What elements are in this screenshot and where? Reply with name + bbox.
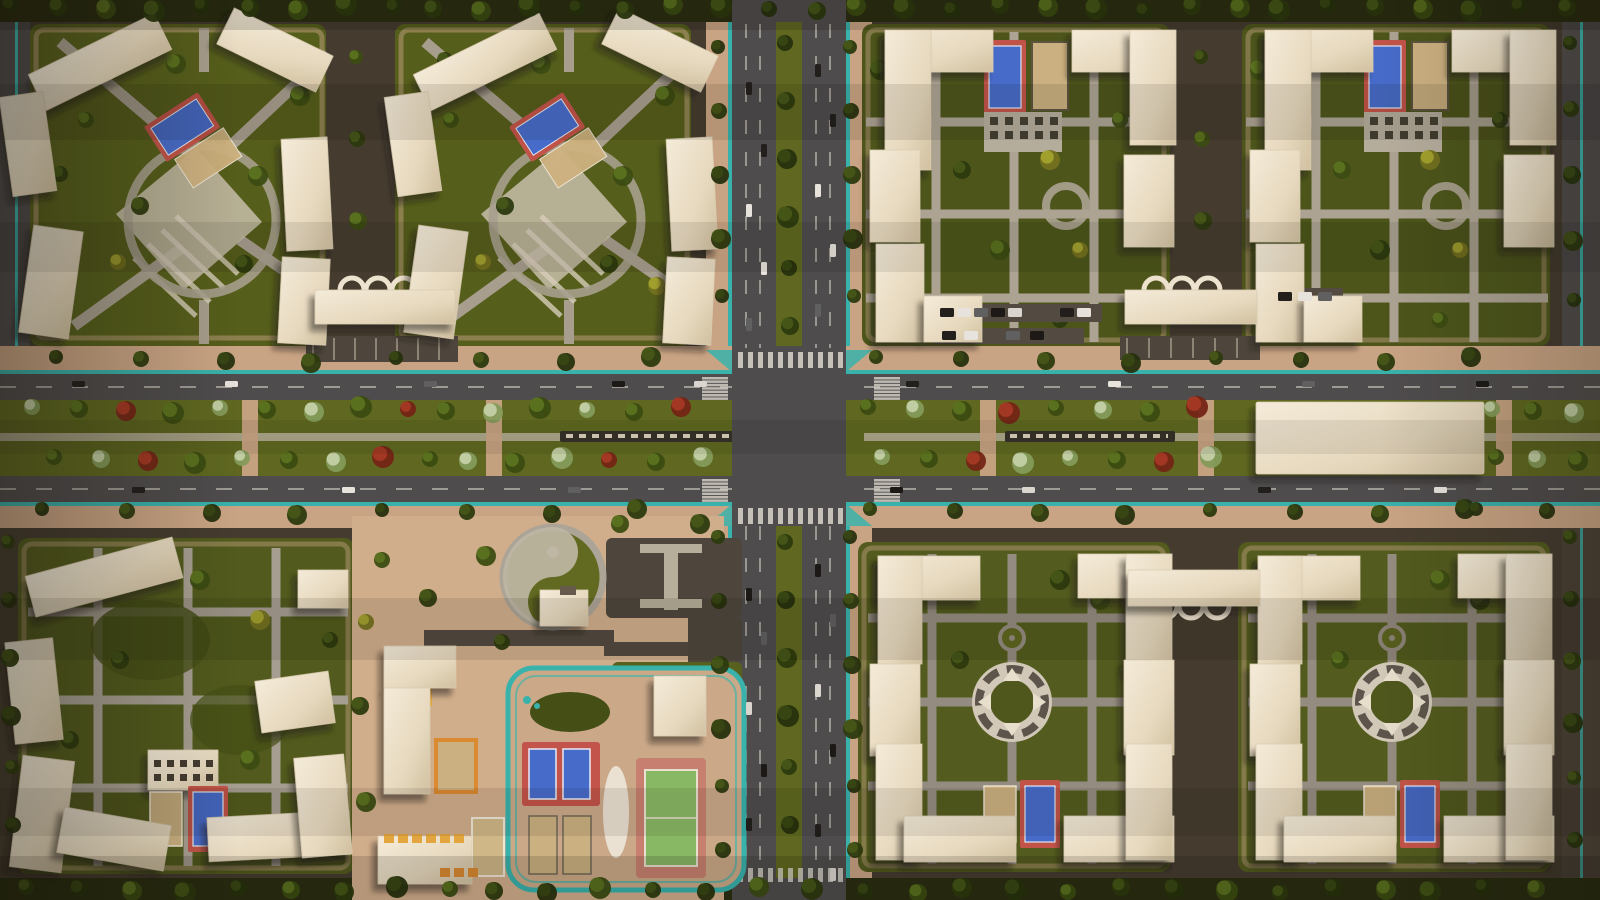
masterplan-svg — [0, 0, 1600, 900]
light-overlays — [0, 0, 1600, 900]
masterplan-aerial-view — [0, 0, 1600, 900]
